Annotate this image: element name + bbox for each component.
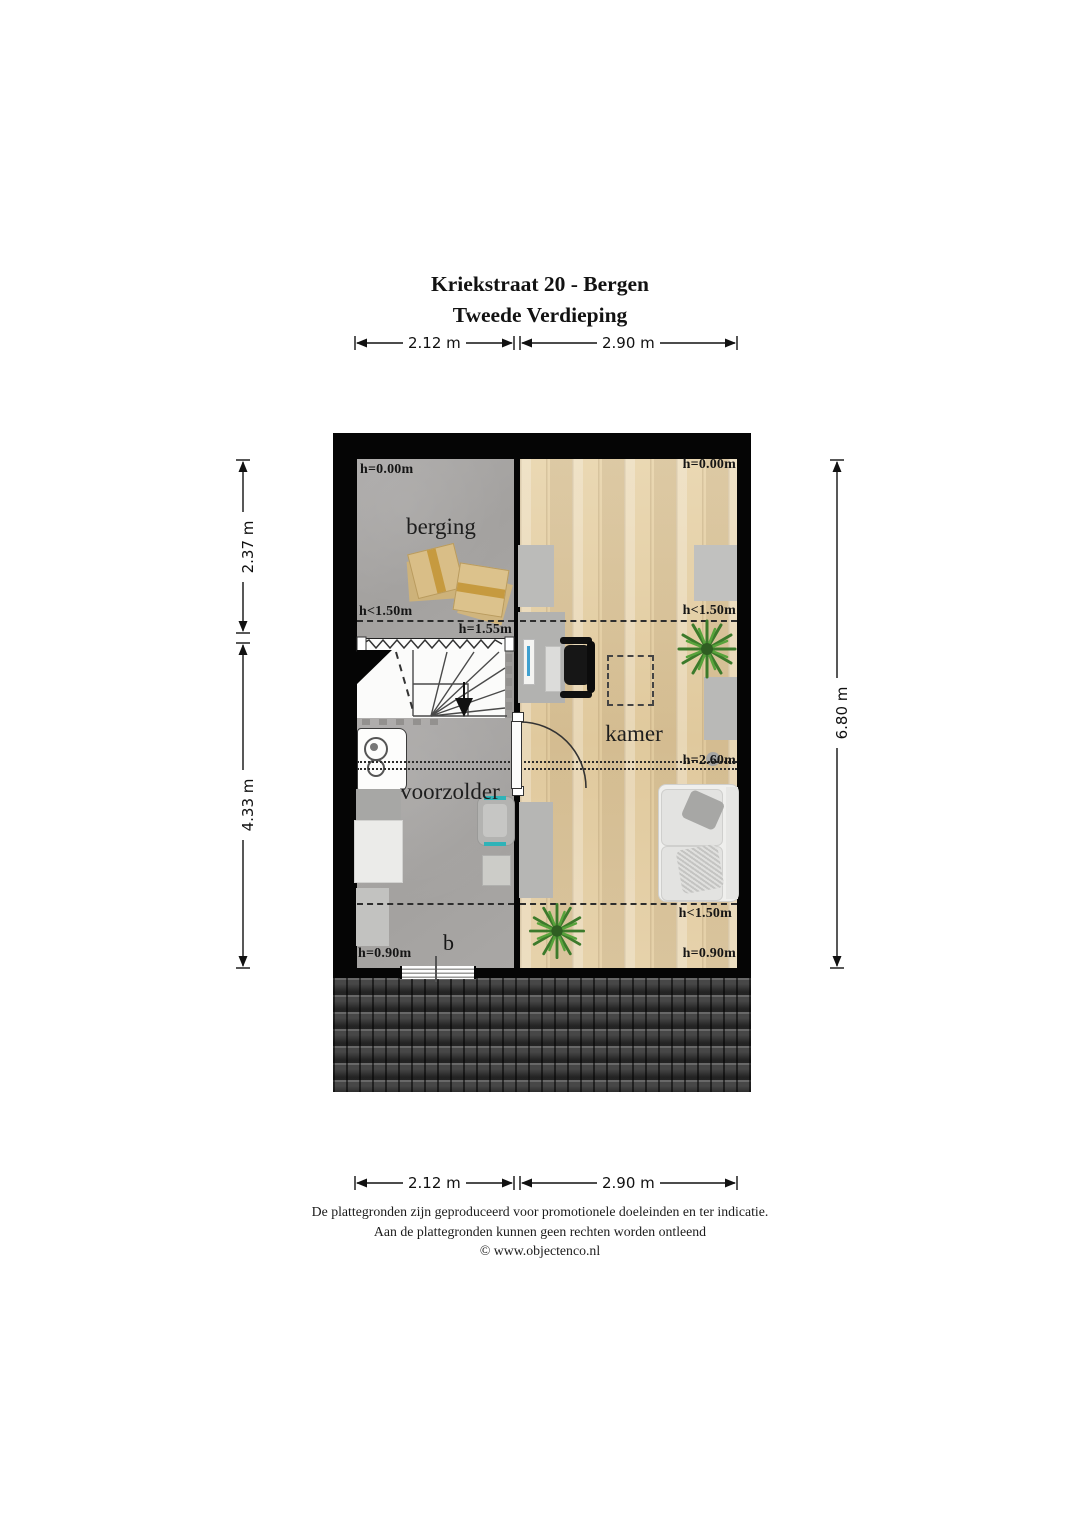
window-glazing-zigzag — [362, 640, 502, 648]
plant-icon-top — [679, 621, 735, 677]
window-b-pointer — [435, 956, 437, 982]
room-label-kamer: kamer — [574, 721, 694, 746]
copyright: © www.objectenco.nl — [0, 1241, 1080, 1261]
plan-linework — [0, 0, 1080, 1527]
stair-wall-wedge — [357, 650, 392, 684]
hlabel-kamer-knee-bottom: h<1.50m — [679, 906, 732, 921]
window-b-label: b — [443, 932, 454, 954]
hlabel-stairs-head: h=1.55m — [459, 622, 512, 637]
disclaimer-line1: De plattegronden zijn geproduceerd voor … — [0, 1202, 1080, 1222]
page-title: Kriekstraat 20 - Bergen Tweede Verdiepin… — [0, 269, 1080, 330]
disclaimer: De plattegronden zijn geproduceerd voor … — [0, 1202, 1080, 1261]
title-line1: Kriekstraat 20 - Bergen — [0, 269, 1080, 300]
stair-direction-arrow — [455, 698, 473, 717]
hlabel-kamer-top: h=0.00m — [683, 457, 736, 472]
hlabel-kamer-bottom: h=0.90m — [683, 946, 736, 961]
plant-icon-bottom — [530, 904, 583, 957]
hlabel-voorzolder-bottom: h=0.90m — [358, 946, 411, 961]
title-line2: Tweede Verdieping — [0, 300, 1080, 331]
disclaimer-line2: Aan de plattegronden kunnen geen rechten… — [0, 1222, 1080, 1242]
hlabel-kamer-knee-top: h<1.50m — [683, 603, 736, 618]
hlabel-berging-knee: h<1.50m — [359, 604, 412, 619]
hlabel-berging-top: h=0.00m — [360, 462, 413, 477]
room-label-voorzolder: voorzolder — [380, 779, 520, 804]
window-jamb-left — [357, 637, 366, 651]
hlabel-ridge: h=2.60m — [683, 753, 736, 768]
stair-headroom-dashed — [396, 652, 414, 714]
room-label-berging: berging — [391, 514, 491, 539]
window-jamb-right — [505, 637, 514, 651]
floorplan-page: Kriekstraat 20 - Bergen Tweede Verdiepin… — [0, 0, 1080, 1527]
